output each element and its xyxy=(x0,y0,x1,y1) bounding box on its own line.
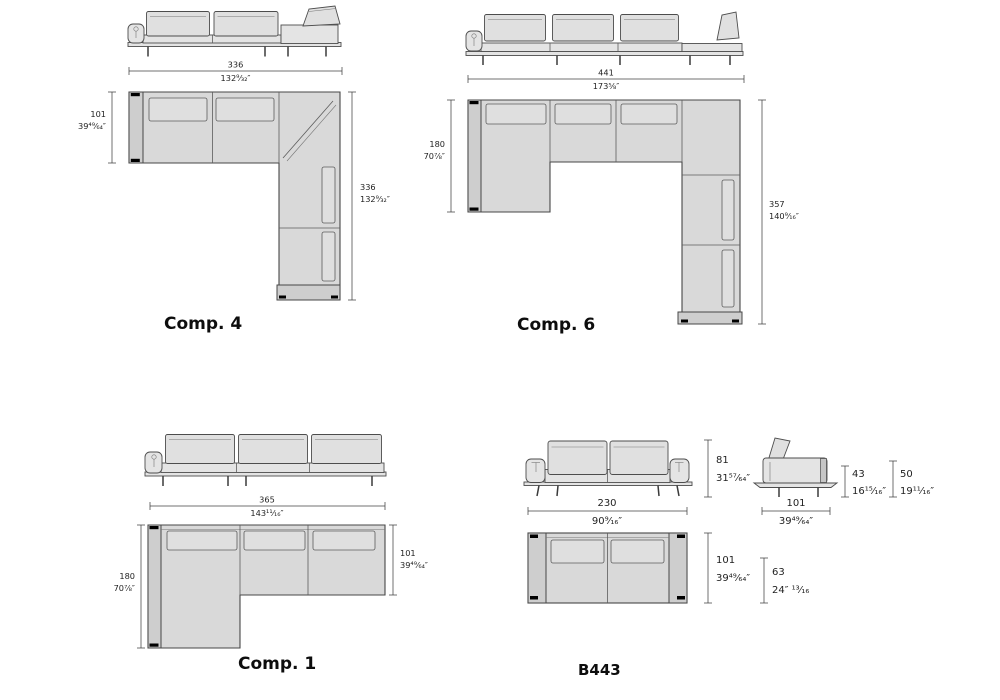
b443-seat-depth-dimension: 63 24″ ¹³⁄₁₆ xyxy=(760,558,809,603)
comp1-plan-cushion-2 xyxy=(313,531,375,550)
comp1-depth-dimension: 180 70⅞″ xyxy=(114,525,145,648)
comp4-label: Comp. 4 xyxy=(164,314,242,334)
comp1-seat-row-cm: 101 xyxy=(400,548,416,558)
b443-seat-depth-cm: 63 xyxy=(772,567,785,578)
b443-side-depth-in: 39⁴⁹⁄₆₄″ xyxy=(779,516,813,527)
comp4-corner-back-cushion xyxy=(303,6,340,26)
comp6-corner-back-cushion xyxy=(717,12,739,40)
b443-width-in: 90⁹⁄₁₆″ xyxy=(592,516,622,527)
comp6-plan-side-cushion-1 xyxy=(722,180,734,240)
comp1-width-in: 143¹¹⁄₁₆″ xyxy=(250,508,283,518)
b443-front-elevation xyxy=(524,441,692,496)
b443-height-in: 31⁵⁷⁄₆₄″ xyxy=(716,473,750,484)
comp1-label: Comp. 1 xyxy=(238,654,316,674)
comp4-plan-outline xyxy=(129,92,340,300)
b443-width-dimension: 230 90⁹⁄₁₆″ xyxy=(528,498,687,527)
comp4-plan-side-cushion-2 xyxy=(322,232,335,281)
comp1-back-cushion-3 xyxy=(312,435,382,464)
comp1-front-elevation xyxy=(145,435,386,487)
comp4-length-cm: 336 xyxy=(360,182,376,192)
b443-plan-depth-in: 39⁴⁹⁄₆₄″ xyxy=(716,573,750,584)
comp1-plan-chaise-cushion xyxy=(167,531,237,550)
b443-plan-cushion-2 xyxy=(611,540,664,563)
b443-side-legs xyxy=(779,488,818,498)
comp1-depth-cm: 180 xyxy=(119,571,135,581)
b443-side-body xyxy=(763,458,827,483)
comp6-plan-chaise-cushion xyxy=(486,104,546,124)
comp4-depth-cm: 101 xyxy=(90,109,106,119)
comp4-back-cushion-1 xyxy=(147,12,210,37)
b443-arm-height-in: 19¹¹⁄₁₆″ xyxy=(900,486,934,497)
comp6-plan-side-cushion-2 xyxy=(722,250,734,307)
comp4-back-cushion-2 xyxy=(214,12,278,37)
b443-legs xyxy=(537,486,679,497)
sofa-spec-sheet: 336 132⁹⁄₃₂″ 101 39⁴⁹⁄₆₄″ 336 132⁹⁄₃₂″ C… xyxy=(0,0,1000,700)
comp6-plan-cushion-1 xyxy=(555,104,611,124)
b443-seat-height-dimension: 43 16¹⁵⁄₁₆″ xyxy=(841,466,886,497)
comp6-depth-in: 70⅞″ xyxy=(424,151,445,161)
comp4-depth-in: 39⁴⁹⁄₆₄″ xyxy=(78,121,106,131)
b443-plan-view xyxy=(528,533,687,603)
comp1-plan-armrest xyxy=(148,525,161,648)
comp6-length-in: 140⁹⁄₁₆″ xyxy=(769,211,799,221)
comp1-legs xyxy=(163,476,372,486)
comp4-plan-view xyxy=(129,92,340,300)
comp1-seat-band xyxy=(161,463,384,473)
comp1-depth-in: 70⅞″ xyxy=(114,583,135,593)
b443-side-depth-dimension: 101 39⁴⁹⁄₆₄″ xyxy=(762,498,830,527)
comp6-back-cushion-1 xyxy=(485,15,546,42)
b443-arm-height-cm: 50 xyxy=(900,469,913,480)
comp4-width-dimension: 336 132⁹⁄₃₂″ xyxy=(129,60,342,84)
b443-label: B443 xyxy=(578,661,621,679)
comp4-length-dimension: 336 132⁹⁄₃₂″ xyxy=(348,92,390,300)
comp6-back-cushion-3 xyxy=(621,15,679,42)
comp4-corner-unit xyxy=(281,25,338,44)
comp4-front-elevation xyxy=(128,6,341,57)
comp6-plan-cushion-2 xyxy=(621,104,677,124)
comp6-plan-view xyxy=(468,100,742,324)
comp6-width-in: 173⅝″ xyxy=(593,81,620,91)
comp4-legs xyxy=(148,47,326,57)
b443-plan-armrest-right xyxy=(669,533,687,603)
comp4-plan-armrest xyxy=(129,92,143,163)
comp4-depth-dimension: 101 39⁴⁹⁄₆₄″ xyxy=(78,92,116,163)
comp1-width-cm: 365 xyxy=(259,495,275,505)
spec-drawing: 336 132⁹⁄₃₂″ 101 39⁴⁹⁄₆₄″ 336 132⁹⁄₃₂″ C… xyxy=(0,0,1000,700)
b443-back-cushion-2 xyxy=(610,441,668,475)
comp6-width-dimension: 441 173⅝″ xyxy=(468,68,744,92)
b443-width-cm: 230 xyxy=(597,498,616,509)
comp6-length-cm: 357 xyxy=(769,199,785,209)
comp1-plan-view xyxy=(148,525,385,648)
comp4-width-cm: 336 xyxy=(228,60,244,70)
comp1-back-cushion-1 xyxy=(166,435,235,464)
comp4-plan-cushion-2 xyxy=(216,98,274,121)
comp1-plan-cushion-1 xyxy=(244,531,305,550)
comp6-open-bench xyxy=(682,44,742,52)
b443-plan-depth-cm: 101 xyxy=(716,555,735,566)
comp1-back-cushion-2 xyxy=(239,435,308,464)
comp6-back-cushion-2 xyxy=(553,15,614,42)
b443-plan-cushion-1 xyxy=(551,540,604,563)
comp1-width-dimension: 365 143¹¹⁄₁₆″ xyxy=(150,495,385,519)
b443-side-platform xyxy=(754,483,837,488)
b443-side-depth-cm: 101 xyxy=(786,498,805,509)
comp4-plan-cushion-1 xyxy=(149,98,207,121)
comp1-seat-row-in: 39⁴⁹⁄₆₄″ xyxy=(400,560,428,570)
comp1-seat-row-dimension: 101 39⁴⁹⁄₆₄″ xyxy=(389,525,428,595)
b443-seat-depth-in: 24″ ¹³⁄₁₆ xyxy=(772,585,809,596)
b443-plan-depth-dimension: 101 39⁴⁹⁄₆₄″ xyxy=(704,533,750,603)
comp6-front-elevation xyxy=(466,12,743,65)
comp6-width-cm: 441 xyxy=(598,68,614,78)
b443-side-elevation xyxy=(754,438,837,497)
b443-height-dimension: 81 31⁵⁷⁄₆₄″ xyxy=(704,440,750,497)
comp6-seat-band xyxy=(481,43,682,52)
b443-seat-height-in: 16¹⁵⁄₁₆″ xyxy=(852,486,886,497)
comp6-length-dimension: 357 140⁹⁄₁₆″ xyxy=(758,100,799,324)
b443-height-cm: 81 xyxy=(716,455,729,466)
comp6-plan-outline xyxy=(468,100,740,324)
b443-side-front-edge xyxy=(821,459,827,483)
comp6-depth-dimension: 180 70⅞″ xyxy=(424,100,455,212)
b443-seat-height-cm: 43 xyxy=(852,469,865,480)
comp4-width-in: 132⁹⁄₃₂″ xyxy=(221,73,251,83)
comp6-plan-armrest xyxy=(468,100,481,212)
comp6-depth-cm: 180 xyxy=(429,139,445,149)
comp6-legs xyxy=(483,56,730,66)
b443-plan-armrest-left xyxy=(528,533,546,603)
comp4-length-in: 132⁹⁄₃₂″ xyxy=(360,194,390,204)
b443-back-cushion-1 xyxy=(548,441,607,475)
b443-arm-height-dimension: 50 19¹¹⁄₁₆″ xyxy=(889,461,934,497)
comp6-label: Comp. 6 xyxy=(517,315,595,335)
comp6-platform xyxy=(466,52,743,56)
comp4-plan-end-armrest xyxy=(277,285,340,300)
comp4-plan-side-cushion-1 xyxy=(322,167,335,223)
